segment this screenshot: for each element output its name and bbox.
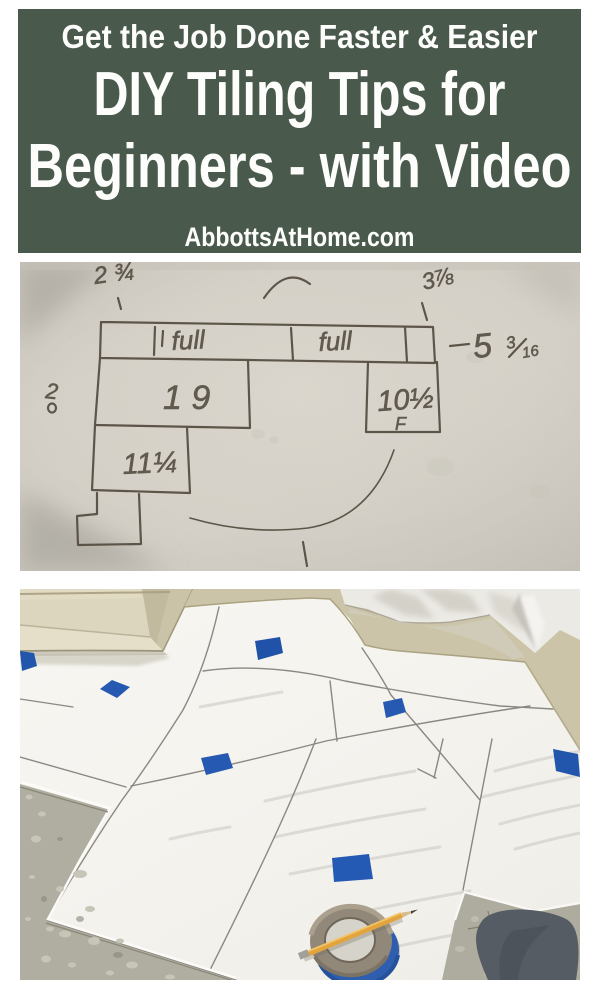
svg-text:full: full — [318, 325, 354, 357]
svg-text:Get the Job Done Faster & Easi: Get the Job Done Faster & Easier — [62, 18, 538, 55]
svg-text:5: 5 — [471, 326, 494, 366]
svg-text:2: 2 — [43, 378, 59, 404]
svg-text:full: full — [171, 324, 207, 356]
svg-text:1 9: 1 9 — [163, 379, 210, 417]
svg-text:F: F — [395, 414, 407, 434]
svg-text:Beginners - with Video: Beginners - with Video — [28, 132, 572, 201]
svg-text:DIY Tiling Tips for: DIY Tiling Tips for — [94, 60, 506, 129]
svg-text:11¼: 11¼ — [122, 446, 178, 481]
svg-text:10½: 10½ — [376, 382, 435, 418]
svg-text:AbbottsAtHome.com: AbbottsAtHome.com — [185, 222, 415, 252]
